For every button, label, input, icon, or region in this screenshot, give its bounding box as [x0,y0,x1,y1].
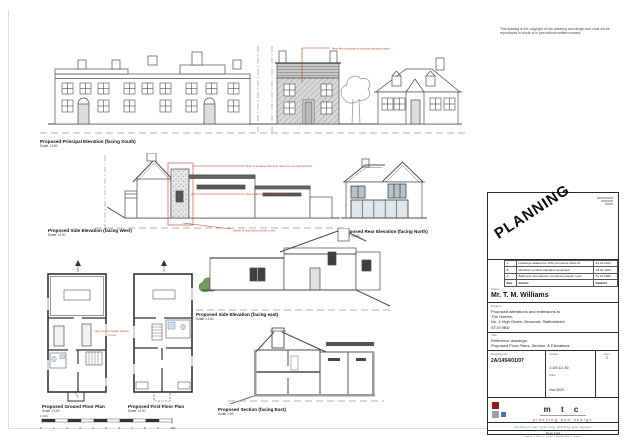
scale-bar [40,418,190,426]
scale-tick: 3 [79,426,81,430]
subject-house [275,51,341,124]
side-elevation-east-drawing [196,228,394,312]
project-lines: Proposed alterations and extensions toTh… [491,309,615,331]
scale-tick: 1 [53,426,55,430]
revision-date: 04.12.2020 [594,274,618,279]
scale-tick: 2 [66,426,68,430]
logo-subtitle: planning and design [512,418,614,422]
revision-letter: B [505,267,517,272]
side-elevation-west-label: Proposed Side Elevation (facing West) Sc… [48,228,132,237]
project-line: ST19 9BD [491,325,615,330]
side-elevation-west-drawing: Roof of existing extension raised to sui… [95,153,345,233]
logo-tagline: certified town planning drafting and des… [488,423,618,431]
title-line: Proposed Floor Plans, Section, & Elevati… [491,343,615,348]
revision-details: Bathroom amended to combined shower room [517,274,594,279]
revision-rows: C Drawings adapted to LPA comments 2012-… [505,261,618,280]
principal-elevation-label: Proposed Principal Elevation (facing Sou… [40,139,136,148]
ground-floor-plan-label: Proposed Ground Floor Plan Scale 1:100 [42,404,105,413]
drawing-title-section: Title: Reference drawings:Proposed Floor… [488,333,618,351]
drawing-sheet: This drawing is the copyright of mtc pla… [0,0,623,437]
planning-stamp: PLANNING [491,181,573,242]
scale-tick: 4 [92,426,94,430]
scale-tick: 0 [40,426,42,430]
plans-annotation: line of new works shown in red [94,330,130,337]
stamp-area: PLANNING [488,193,618,260]
scale-tick: 6 [118,426,120,430]
address: Dean FoldWatling Street, Gailey, Staffor… [488,431,618,437]
paper-edge-left [8,10,9,428]
current-revision: C [599,356,615,360]
scales-date-cell: Scales 1:100 & 1:50 Date Nov 2020 [546,351,596,397]
copyright-note: This drawing is the copyright of mtc pla… [500,27,618,36]
scale-tick: 8 [144,426,146,430]
west-annotation-2: New walls rendered to match existing [246,192,293,196]
rev-cell: Rev C [596,351,618,397]
logo-name: m t c [540,406,587,416]
client-name: Mr. T. M. Williams [491,292,615,301]
revision-table: C Drawings adapted to LPA comments 2012-… [504,260,618,287]
revision-date: 24.01.2021 [594,261,618,266]
rear-elevation-north-drawing [338,156,430,228]
date-value: Nov 2020 [549,388,564,392]
client-section: Client: Mr. T. M. Williams [488,287,618,303]
drawing-number: 2A/1454/01/07 [491,358,542,364]
revision-letter: C [505,261,517,266]
scales-value: 1:100 & 1:50 [549,366,568,370]
title-block: PLANNING C Drawings adapted to LPA comme… [487,192,619,435]
project-section: Project: Proposed alterations and extens… [488,303,618,332]
revision-details: Drawings adapted to LPA comments 2012-07 [517,261,594,266]
first-floor-plan-label: Proposed First Floor Plan Scale 1:100 [128,404,184,413]
first-floor-plan-drawing [126,260,204,404]
drawing-number-cell: Drawing No. 2A/1454/01/07 [488,351,546,397]
principal-elevation-drawing: New flue terminal to existing chimney st… [40,38,465,138]
scale-tick: 5 [105,426,107,430]
section-drawing [228,326,384,404]
flue-annotation: New flue terminal to existing chimney st… [332,47,390,51]
title-lines: Reference drawings:Proposed Floor Plans,… [491,338,615,349]
logo: m t c planning and design [488,398,618,423]
revision-letter: A [505,274,517,279]
scale-tick: 10m [170,426,176,430]
logo-squares-icon [492,402,508,419]
scale-check-icon [593,196,615,206]
tree-icon [341,76,370,124]
scale-tick: 7 [131,426,133,430]
meta-section: Drawing No. 2A/1454/01/07 Scales 1:100 &… [488,351,618,398]
section-label: Proposed Section (facing East) Scale 1:5… [218,407,286,416]
north-arrow-icon [75,260,81,272]
side-elevation-east-label: Proposed Side Elevation (facing east) Sc… [196,312,278,321]
west-annotation-1: Roof of existing extension raised to sui… [246,164,312,168]
revision-details: Windows to West elevation amended [517,267,594,272]
scale-bar-ticks: 012345678910m [40,426,176,430]
scale-tick: 9 [157,426,159,430]
north-arrow-icon [161,260,167,272]
revision-date: 13.01.2021 [594,267,618,272]
